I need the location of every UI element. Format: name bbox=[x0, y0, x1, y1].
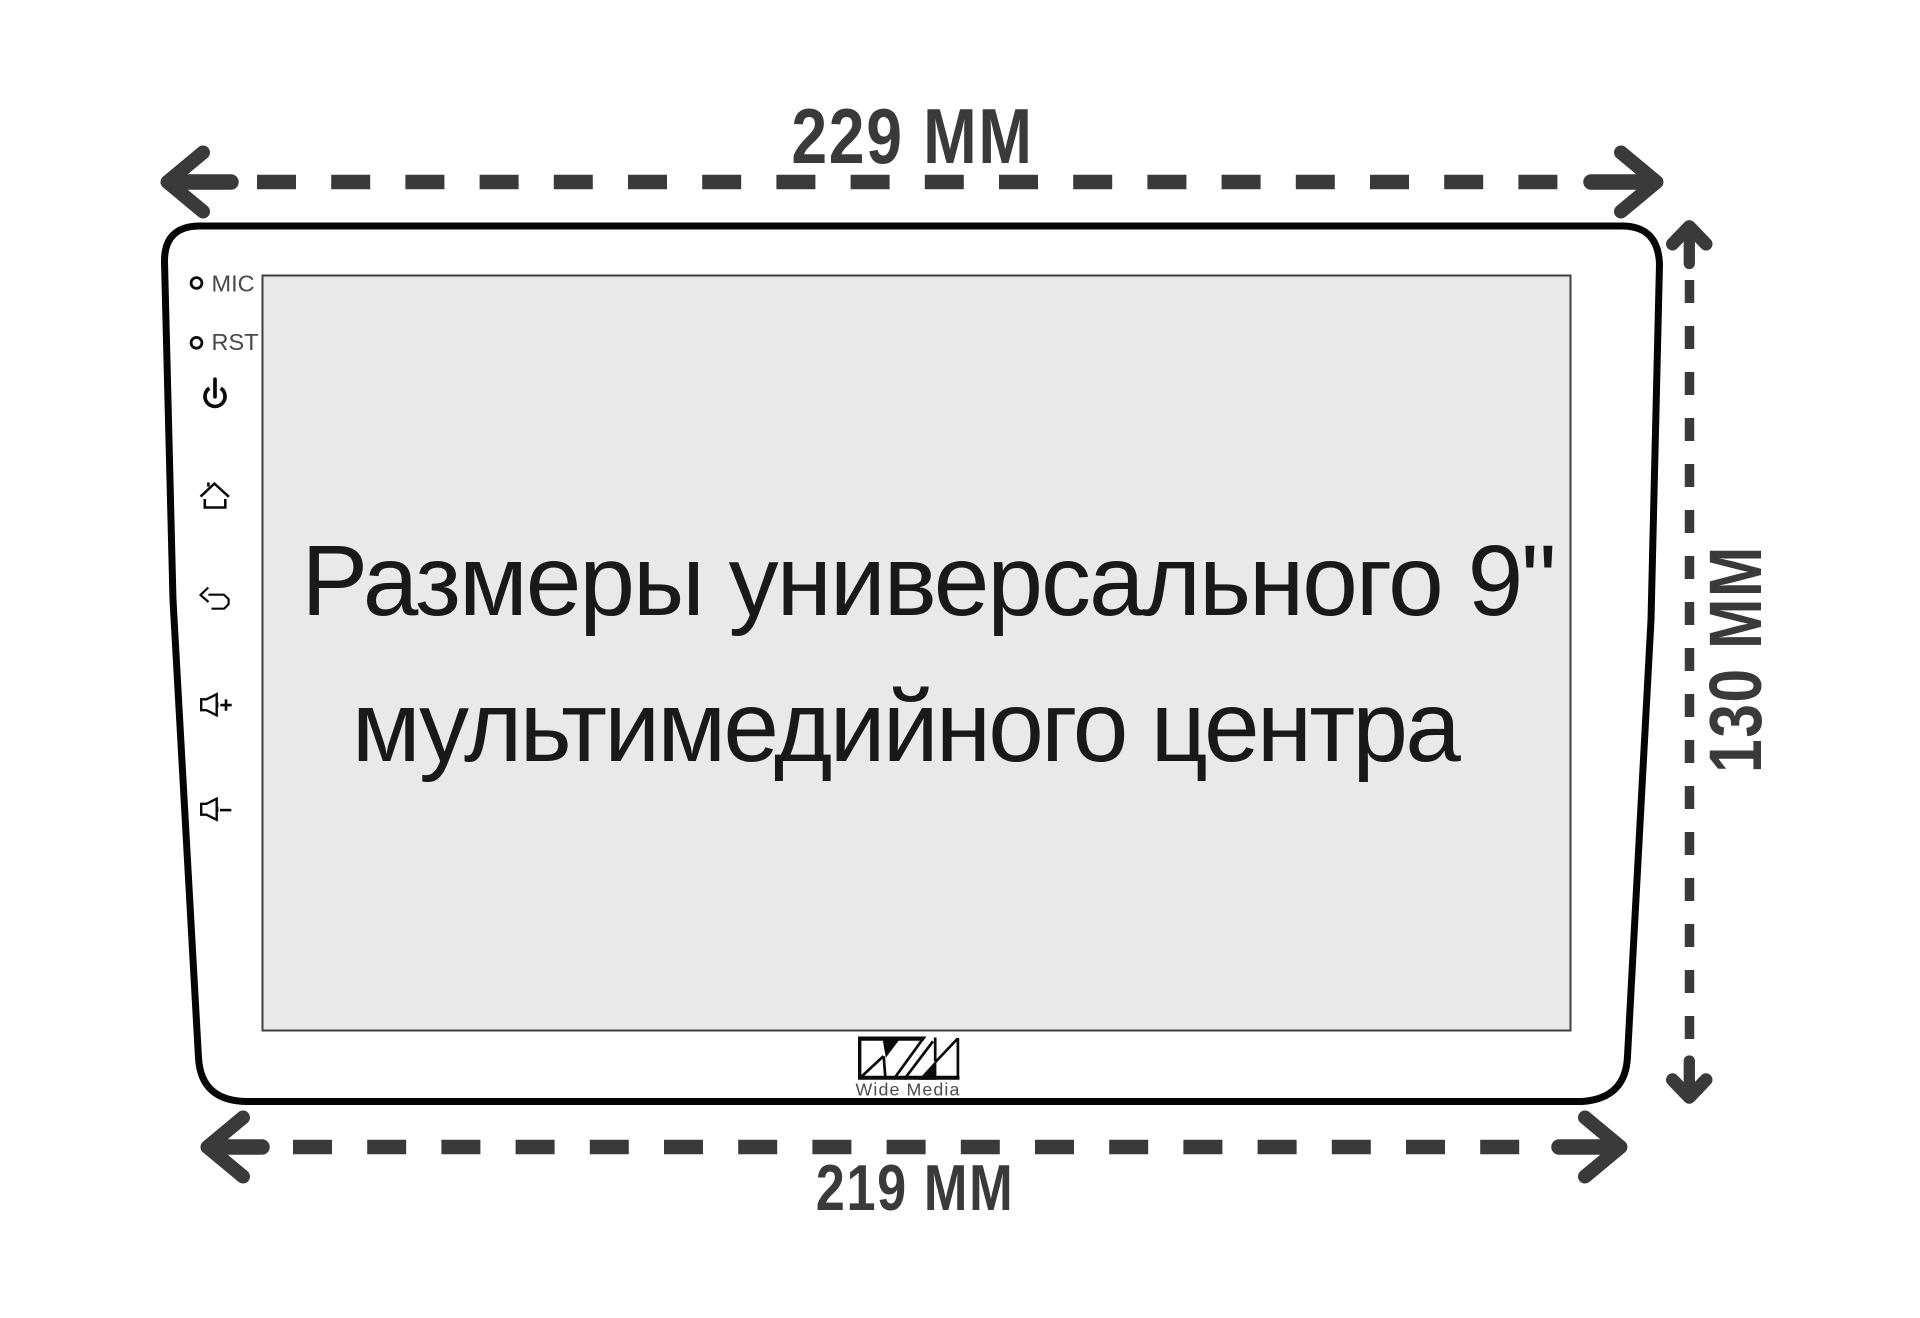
svg-text:Размеры универсального 9": Размеры универсального 9" bbox=[301, 525, 1554, 637]
svg-text:RST: RST bbox=[212, 329, 259, 355]
svg-text:229 MM: 229 MM bbox=[791, 93, 1033, 180]
svg-text:219 MM: 219 MM bbox=[816, 1153, 1014, 1225]
svg-text:MIC: MIC bbox=[212, 271, 255, 297]
svg-text:130 MM: 130 MM bbox=[1695, 545, 1777, 773]
svg-text:Wide Media: Wide Media bbox=[856, 1080, 961, 1100]
svg-text:мультимедийного центра: мультимедийного центра bbox=[352, 671, 1461, 783]
